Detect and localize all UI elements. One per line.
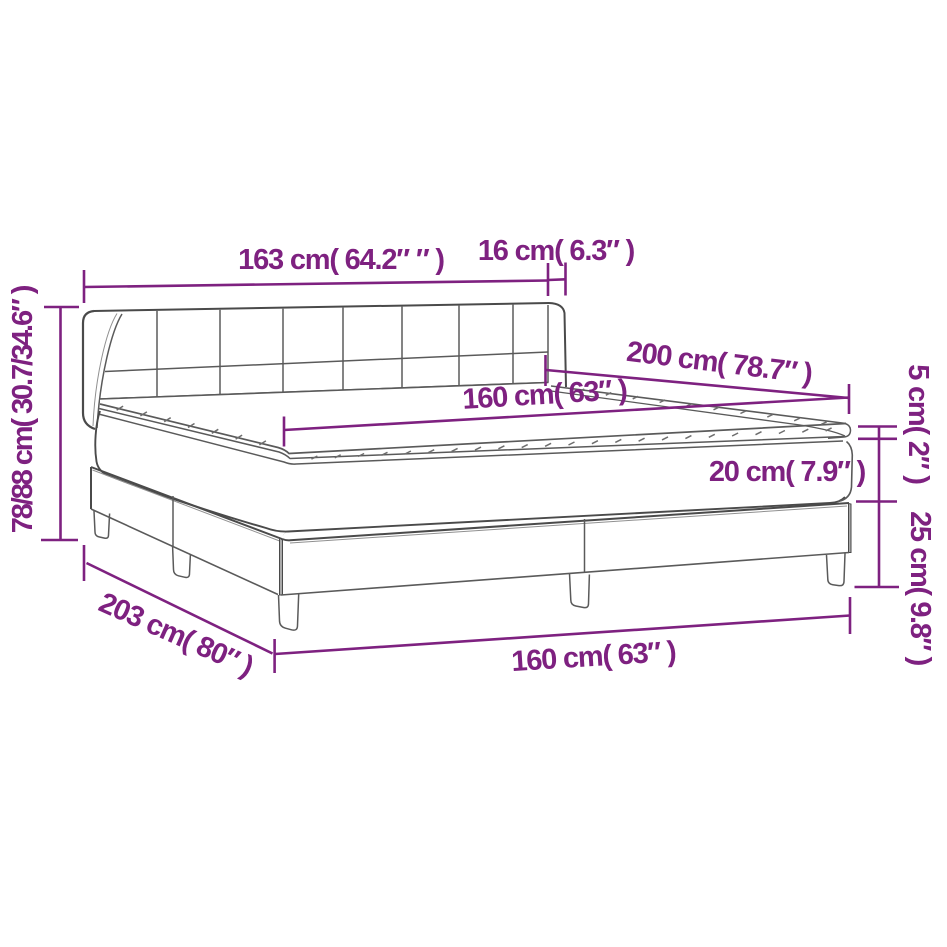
svg-text:5 cm( 2″ ): 5 cm( 2″ ) (902, 364, 934, 484)
svg-text:163 cm( 64.2″ ″ ): 163 cm( 64.2″ ″ ) (238, 244, 444, 276)
svg-text:78/88 cm( 30.7/34.6″ ): 78/88 cm( 30.7/34.6″ ) (7, 285, 39, 533)
svg-text:16 cm( 6.3″ ): 16 cm( 6.3″ ) (478, 235, 635, 267)
svg-text:25 cm( 9.8″ ): 25 cm( 9.8″ ) (904, 511, 936, 665)
svg-text:20 cm( 7.9″ ): 20 cm( 7.9″ ) (709, 456, 866, 488)
